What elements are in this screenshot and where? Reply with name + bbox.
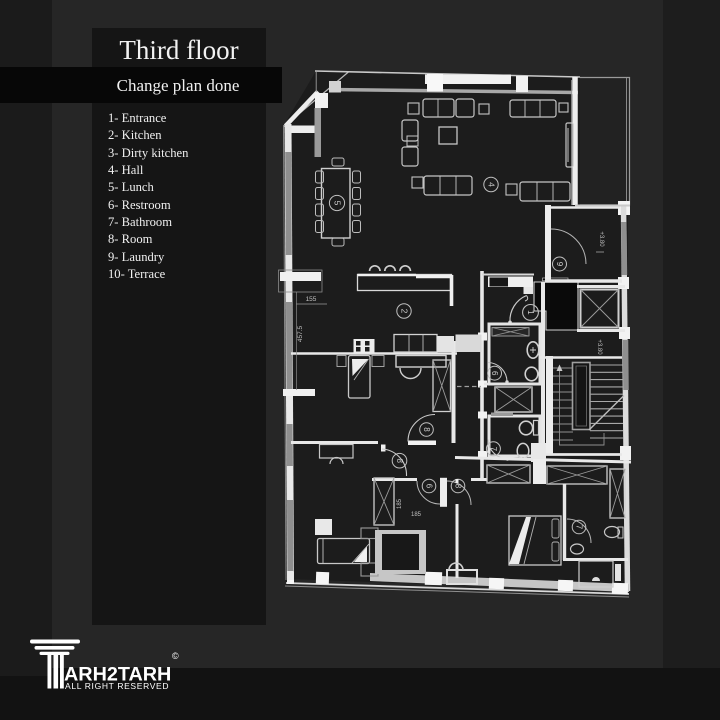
- svg-text:457.5: 457.5: [297, 325, 304, 342]
- svg-text:155: 155: [306, 296, 317, 303]
- svg-text:9: 9: [555, 262, 564, 267]
- svg-text:2: 2: [400, 309, 410, 314]
- svg-text:6: 6: [490, 371, 499, 376]
- svg-text:5: 5: [333, 201, 343, 206]
- svg-text:7: 7: [489, 447, 498, 452]
- svg-text:1: 1: [526, 310, 535, 315]
- svg-text:4: 4: [487, 182, 497, 187]
- svg-text:185: 185: [411, 512, 422, 518]
- svg-text:185: 185: [397, 498, 403, 509]
- svg-text:+3.80: +3.80: [596, 339, 602, 355]
- svg-text:7: 7: [575, 525, 584, 530]
- svg-text:8: 8: [395, 458, 404, 463]
- svg-text:8: 8: [422, 427, 431, 432]
- svg-text:8: 8: [454, 484, 463, 489]
- svg-text:+3.80: +3.80: [598, 231, 604, 247]
- svg-text:©: ©: [172, 651, 179, 661]
- svg-text:6: 6: [425, 484, 434, 489]
- svg-text:ALL RIGHT RESERVED: ALL RIGHT RESERVED: [65, 681, 169, 691]
